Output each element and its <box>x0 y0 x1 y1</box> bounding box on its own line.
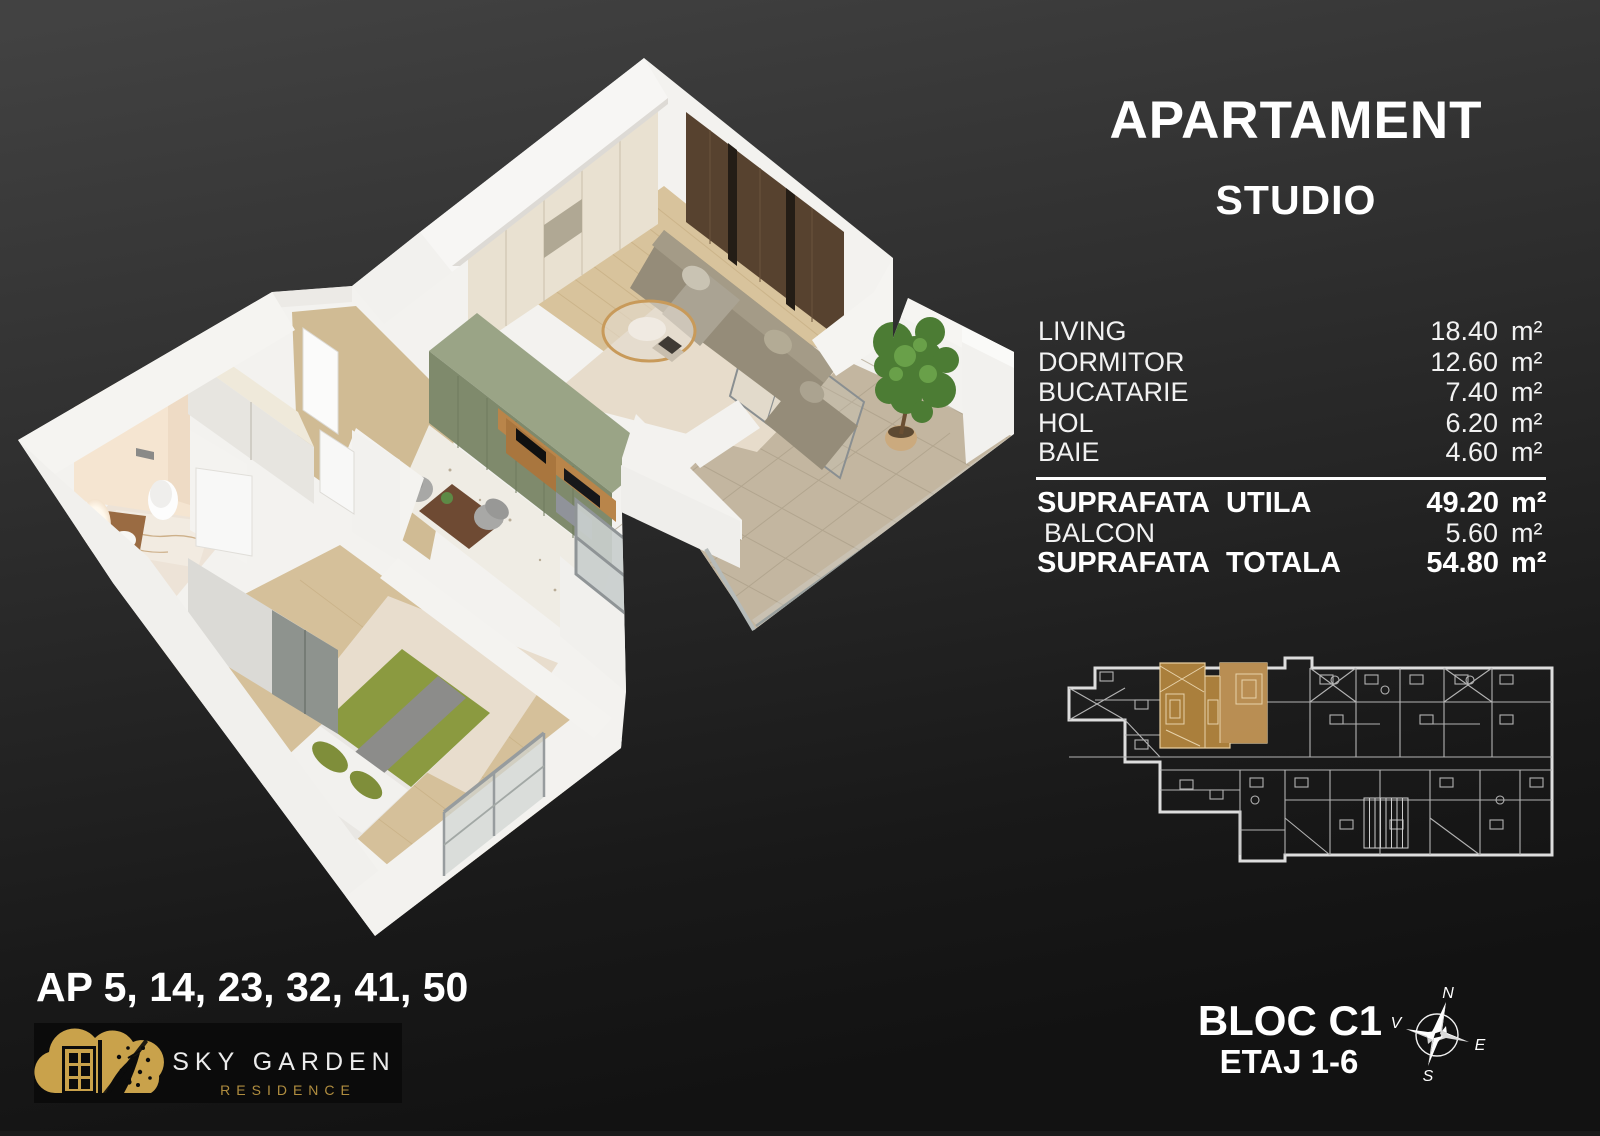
svg-text:HOL: HOL <box>1038 408 1094 438</box>
svg-text:4.60: 4.60 <box>1445 437 1498 467</box>
svg-text:V: V <box>1391 1015 1403 1032</box>
svg-text:m²: m² <box>1511 487 1547 519</box>
svg-text:BUCATARIE: BUCATARIE <box>1038 377 1189 407</box>
svg-text:m²: m² <box>1511 518 1542 548</box>
svg-text:S: S <box>1423 1068 1434 1085</box>
svg-text:DORMITOR: DORMITOR <box>1038 347 1185 377</box>
svg-text:N: N <box>1442 985 1454 1002</box>
svg-text:SUPRAFATA TOTALA: SUPRAFATA TOTALA <box>1037 547 1341 579</box>
svg-text:7.40: 7.40 <box>1445 377 1498 407</box>
svg-text:E: E <box>1475 1037 1486 1054</box>
svg-text:m²: m² <box>1511 547 1547 579</box>
svg-text:RESIDENCE: RESIDENCE <box>220 1082 356 1098</box>
svg-text:BALCON: BALCON <box>1044 518 1155 548</box>
svg-text:BAIE: BAIE <box>1038 437 1100 467</box>
svg-text:SUPRAFATA UTILA: SUPRAFATA UTILA <box>1037 487 1311 519</box>
svg-text:m²: m² <box>1511 347 1542 377</box>
svg-text:m²: m² <box>1511 437 1542 467</box>
svg-text:BLOC C1: BLOC C1 <box>1198 997 1382 1044</box>
svg-text:STUDIO: STUDIO <box>1216 177 1377 223</box>
svg-text:6.20: 6.20 <box>1445 408 1498 438</box>
svg-text:m²: m² <box>1511 408 1542 438</box>
svg-text:m²: m² <box>1511 377 1542 407</box>
svg-text:54.80: 54.80 <box>1426 547 1499 579</box>
svg-text:m²: m² <box>1511 316 1542 346</box>
svg-text:5.60: 5.60 <box>1445 518 1498 548</box>
svg-text:APARTAMENT: APARTAMENT <box>1109 91 1482 150</box>
svg-text:LIVING: LIVING <box>1038 316 1127 346</box>
svg-text:18.40: 18.40 <box>1430 316 1498 346</box>
svg-text:49.20: 49.20 <box>1426 487 1499 519</box>
svg-text:SKY GARDEN: SKY GARDEN <box>172 1048 395 1076</box>
svg-text:AP 5, 14, 23, 32, 41, 50: AP 5, 14, 23, 32, 41, 50 <box>36 964 468 1010</box>
svg-text:12.60: 12.60 <box>1430 347 1498 377</box>
svg-text:ETAJ 1-6: ETAJ 1-6 <box>1220 1043 1359 1080</box>
